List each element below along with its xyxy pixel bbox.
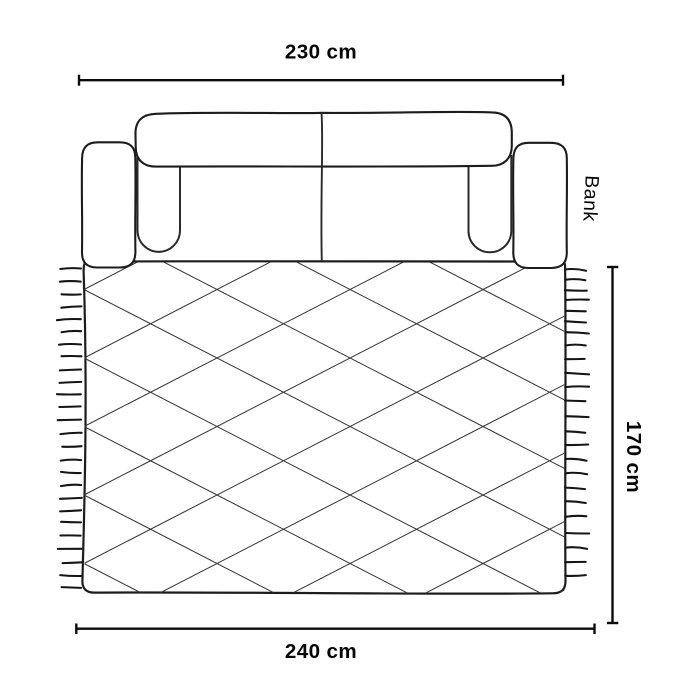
- svg-text:Bank: Bank: [578, 175, 602, 223]
- svg-text:170 cm: 170 cm: [622, 421, 645, 493]
- svg-text:240 cm: 240 cm: [285, 640, 357, 663]
- svg-text:230 cm: 230 cm: [285, 41, 357, 64]
